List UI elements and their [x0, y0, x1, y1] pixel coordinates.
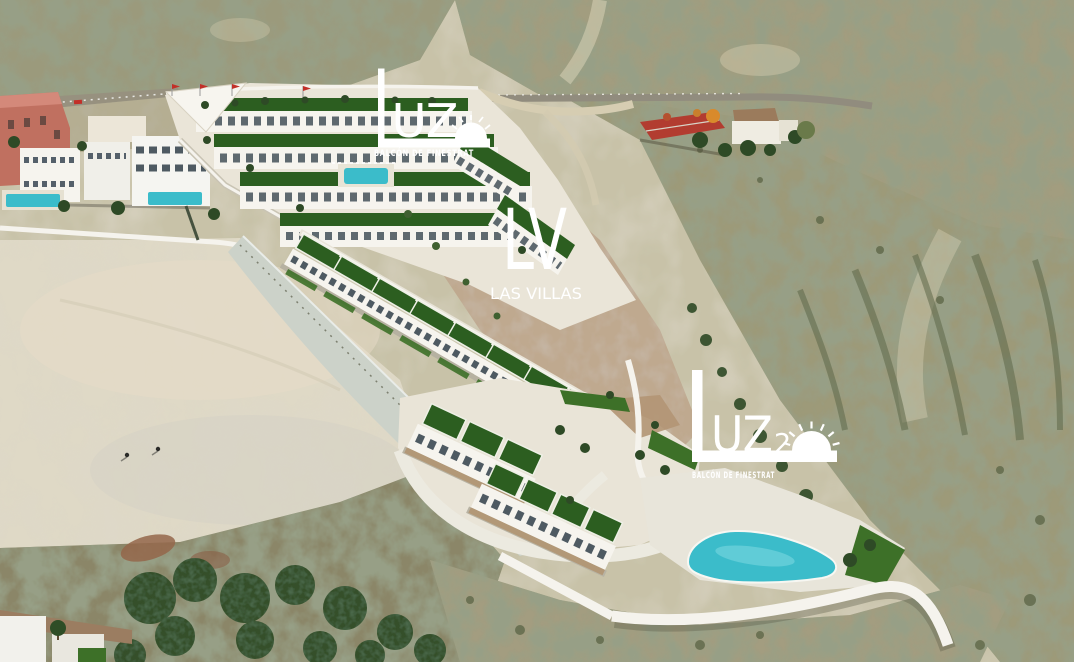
- white-villa: [84, 142, 130, 200]
- rooftop-pool: [344, 168, 388, 184]
- tall-tree: [797, 121, 815, 139]
- person: [125, 453, 129, 457]
- clearing-patch: [210, 18, 270, 42]
- logo-top-tagline: BALCÓN DE FINESTRAT: [374, 147, 474, 159]
- orange-tree: [693, 109, 701, 117]
- villa-pool: [148, 192, 202, 205]
- villa-pool: [6, 194, 60, 207]
- corner-villa: [0, 616, 46, 662]
- orange-tree: [706, 109, 720, 123]
- person: [156, 447, 160, 451]
- scene-canvas: UZ BALCÓN DE FINESTRAT LV LAS VILLAS UZ …: [0, 0, 1074, 662]
- luz2-letter-l: [692, 370, 703, 462]
- farmhouse: [732, 121, 781, 144]
- aerial-photo: UZ BALCÓN DE FINESTRAT LV LAS VILLAS UZ …: [0, 0, 1074, 662]
- luz-wordmark-tail: UZ: [392, 94, 459, 148]
- luz-letter-l: [378, 69, 385, 148]
- lv-initials: LV: [502, 191, 567, 289]
- clearing-patch: [720, 44, 800, 76]
- tree: [864, 539, 876, 551]
- red-car: [74, 100, 82, 105]
- red-bush: [663, 113, 671, 121]
- tree: [843, 553, 857, 567]
- corner-lawn: [78, 648, 106, 662]
- palm-tree: [50, 620, 66, 636]
- logo-bottom-tagline: BALCÓN DE FINESTRAT: [692, 469, 775, 481]
- luz2-wordmark-tail: UZ: [711, 406, 773, 464]
- las-villas-label: LAS VILLAS: [490, 284, 582, 303]
